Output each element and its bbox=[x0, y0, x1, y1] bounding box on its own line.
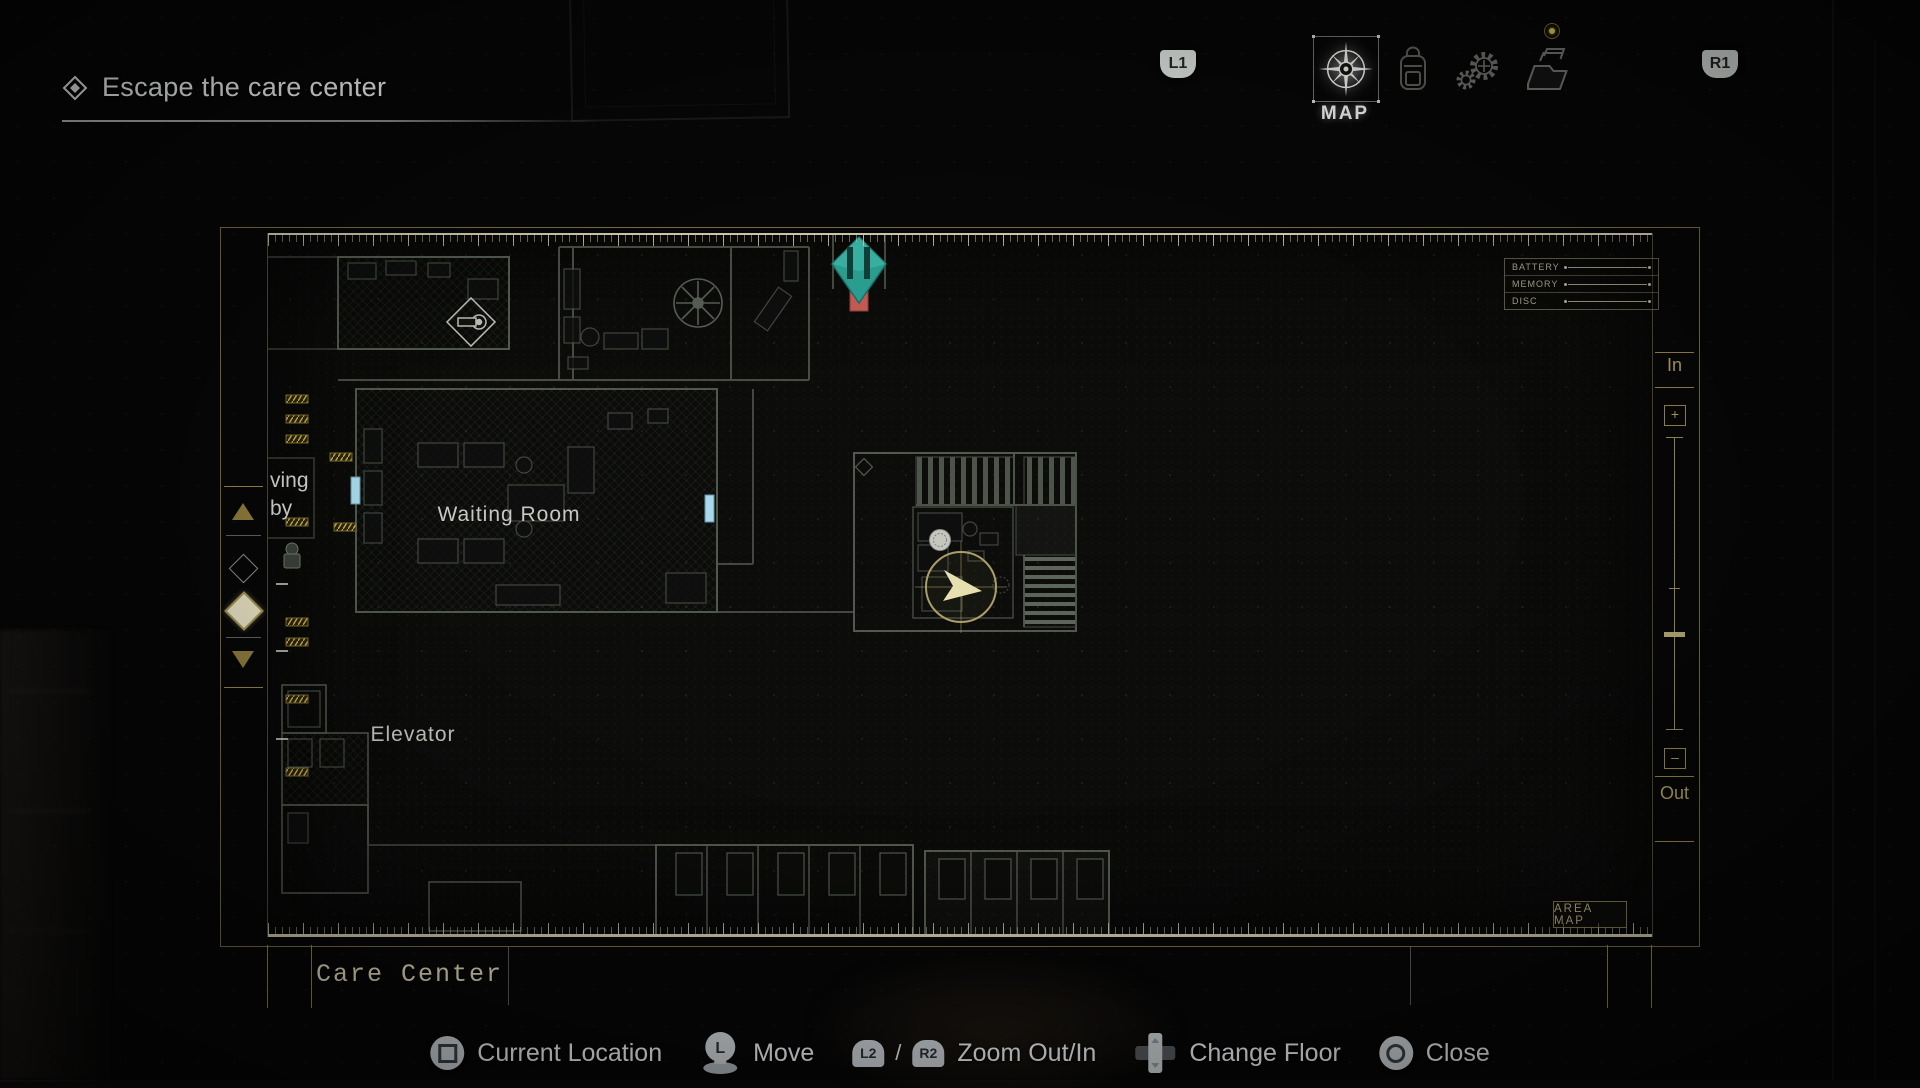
vignette-overlay bbox=[0, 0, 1920, 1080]
